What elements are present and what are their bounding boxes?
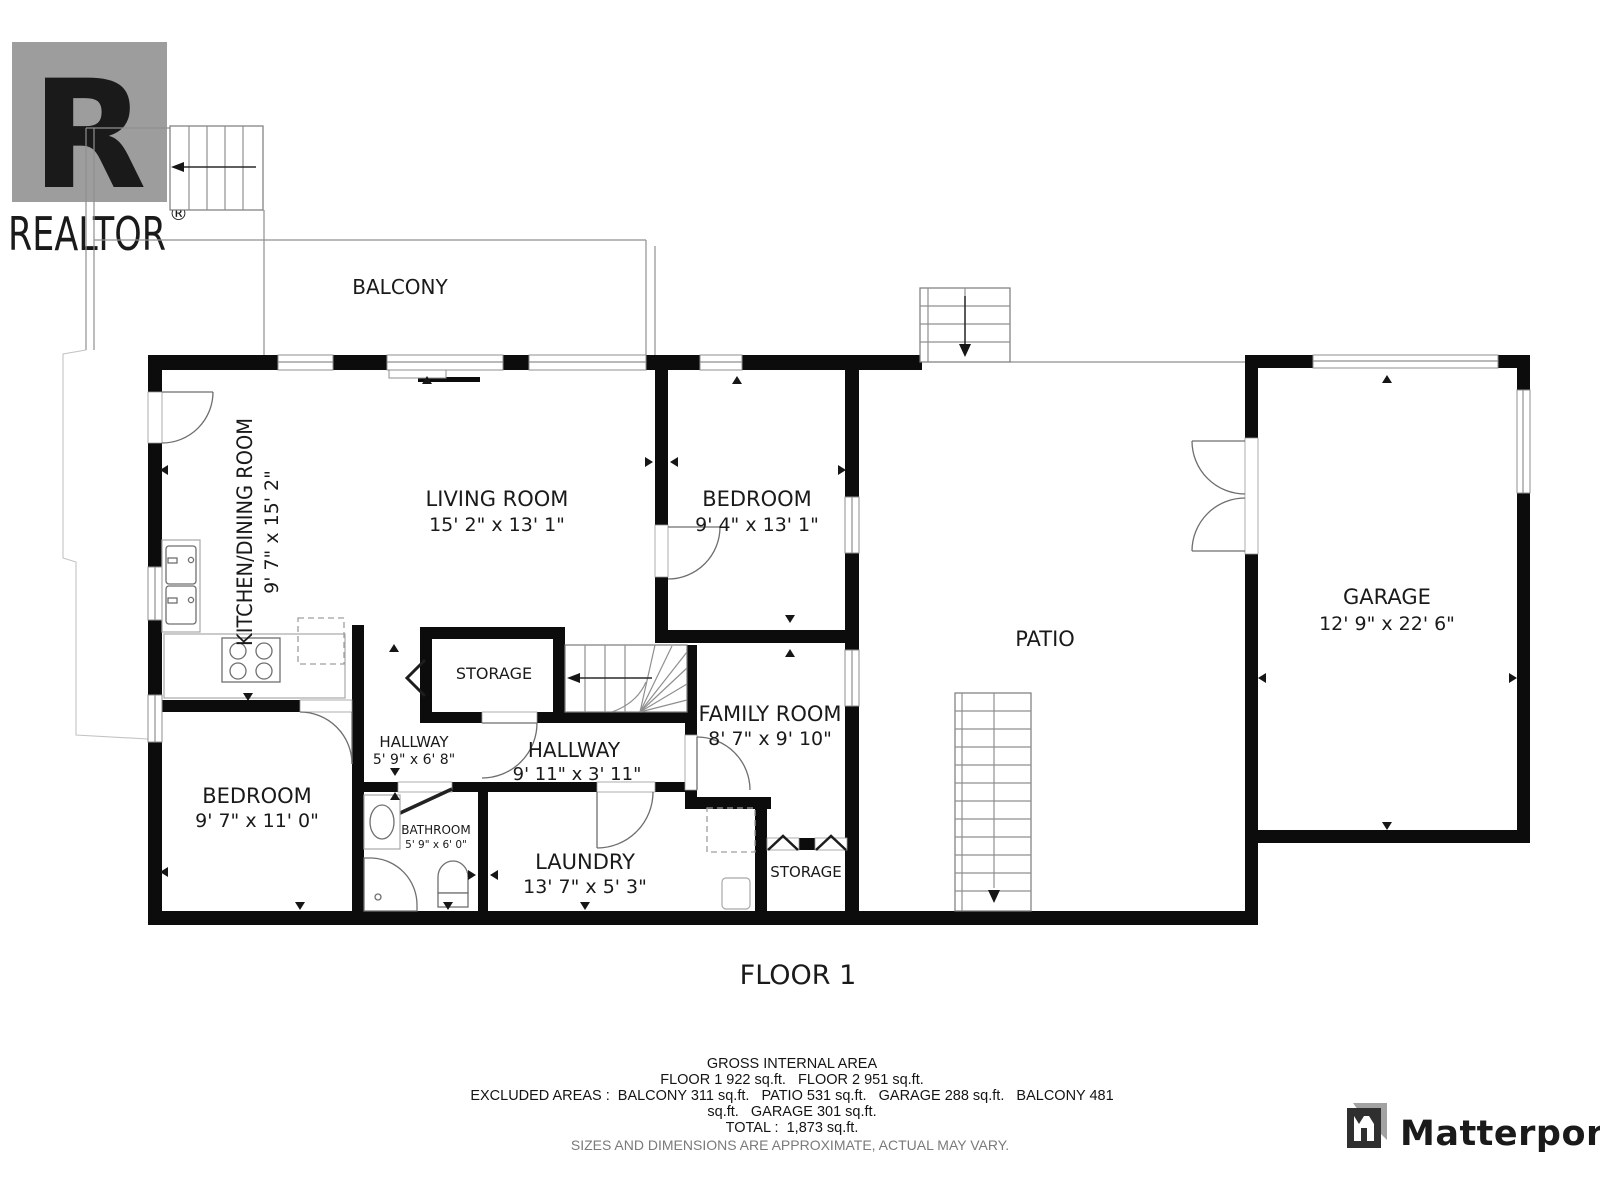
label-hallway-main: HALLWAY [528,738,621,762]
footer: GROSS INTERNAL AREA FLOOR 1 922 sq.ft. F… [470,1056,1113,1153]
interior-winder-stairs [565,645,687,712]
footer-total-line: TOTAL : 1,873 sq.ft. [726,1120,859,1136]
dims-laundry: 13' 7" x 5' 3" [523,876,647,898]
patio-stairs-small [920,288,1010,362]
realtor-wordmark: REALTOR [8,207,166,261]
toilet-bowl [438,861,468,893]
label-family-room: FAMILY ROOM [698,702,841,726]
footer-floors-line: FLOOR 1 922 sq.ft. FLOOR 2 951 sq.ft. [660,1072,924,1088]
door-arc-kitchen-entry [162,392,213,443]
dims-hallway-small: 5' 9" x 6' 8" [373,752,455,768]
dims-bedroom-upper: 9' 4" x 13' 1" [695,514,819,536]
label-garage: GARAGE [1343,585,1431,609]
door-arc-bedroom-lower [300,712,352,764]
dims-living-room: 15' 2" x 13' 1" [429,514,565,536]
window-top-2-sill [389,370,446,378]
laundry-washer [722,878,750,909]
door-arc-garage-bottom [1192,498,1245,551]
footer-excluded-line-1: EXCLUDED AREAS : BALCONY 311 sq.ft. PATI… [470,1088,1113,1104]
patio-stairs-long [955,693,1031,911]
floorplan-svg: R REALTOR ® [0,0,1600,1200]
door-arc-garage-top [1192,441,1245,494]
matterport-logo: Matterport [1347,1103,1600,1154]
shower [364,858,417,911]
balcony-stairs [170,126,263,210]
label-storage-mid: STORAGE [456,664,532,683]
floor-title: FLOOR 1 [740,960,857,991]
floorplan-page: R REALTOR ® [0,0,1600,1200]
matterport-wordmark: Matterport [1400,1114,1600,1154]
label-bedroom-upper: BEDROOM [702,487,812,511]
toilet-tank [438,893,468,907]
label-patio: PATIO [1015,627,1075,651]
label-bathroom: BATHROOM [401,823,470,837]
dims-bathroom: 5' 9" x 6' 0" [405,839,467,851]
doors [148,392,1258,850]
kitchen-sink-1 [166,546,196,584]
door-arc-laundry [597,792,653,848]
label-living-room: LIVING ROOM [426,487,569,511]
dims-hallway-main: 9' 11" x 3' 11" [513,764,642,785]
label-balcony: BALCONY [352,275,448,299]
door-leaf-bathroom [398,789,452,814]
footer-disclaimer: SIZES AND DIMENSIONS ARE APPROXIMATE, AC… [571,1137,1009,1153]
dims-bedroom-lower: 9' 7" x 11' 0" [195,810,319,832]
label-hallway-small: HALLWAY [379,733,449,751]
realtor-logo: R REALTOR ® [8,42,188,261]
kitchen-sink-2 [166,586,196,624]
label-kitchen-dining: KITCHEN/DINING ROOM [233,418,257,646]
footer-gross-area-title: GROSS INTERNAL AREA [707,1056,878,1072]
bathroom-sink [370,805,394,839]
label-bedroom-lower: BEDROOM [202,784,312,808]
laundry-appliance-dashed [707,808,755,852]
label-storage-lower: STORAGE [770,863,841,881]
dims-garage: 12' 9" x 22' 6" [1319,613,1455,635]
dims-kitchen-dining: 9' 7" x 15' 2" [261,470,283,594]
label-laundry: LAUNDRY [535,850,635,874]
footer-excluded-line-2: sq.ft. GARAGE 301 sq.ft. [707,1104,876,1120]
dims-family-room: 8' 7" x 9' 10" [708,728,832,750]
realtor-logo-r: R [31,49,147,223]
